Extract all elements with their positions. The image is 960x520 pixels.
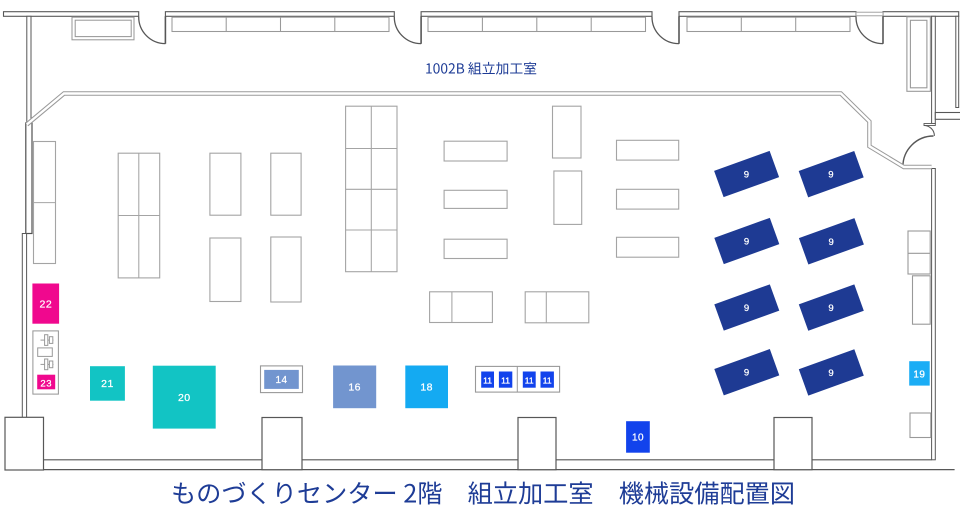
svg-text:9: 9: [744, 303, 750, 314]
svg-text:11: 11: [525, 375, 534, 385]
svg-text:10: 10: [632, 433, 644, 444]
svg-text:19: 19: [913, 369, 925, 380]
svg-text:18: 18: [420, 382, 433, 394]
svg-text:9: 9: [828, 303, 834, 314]
svg-text:9: 9: [829, 237, 835, 248]
svg-text:14: 14: [275, 375, 287, 386]
svg-text:11: 11: [501, 375, 510, 385]
svg-text:21: 21: [101, 378, 114, 390]
svg-text:9: 9: [744, 237, 750, 248]
svg-text:22: 22: [40, 299, 53, 311]
svg-text:9: 9: [828, 368, 834, 379]
svg-text:23: 23: [40, 378, 52, 389]
svg-text:9: 9: [828, 170, 834, 181]
svg-text:9: 9: [744, 170, 750, 181]
svg-text:11: 11: [543, 375, 552, 385]
svg-text:9: 9: [744, 368, 750, 379]
svg-text:11: 11: [483, 375, 492, 385]
svg-text:20: 20: [178, 392, 191, 404]
svg-text:16: 16: [348, 382, 361, 394]
